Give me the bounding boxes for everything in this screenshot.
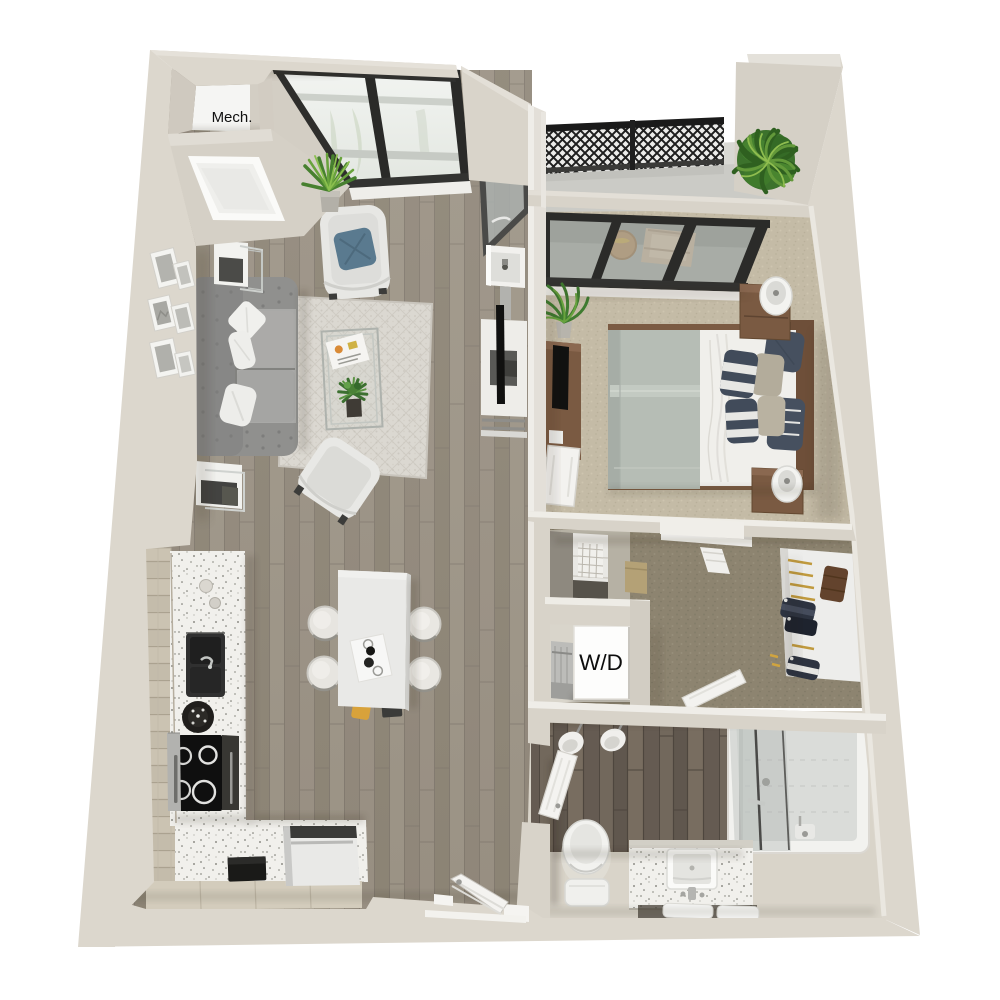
svg-text:W/D: W/D xyxy=(579,650,623,675)
svg-text:Mech.: Mech. xyxy=(212,109,253,126)
